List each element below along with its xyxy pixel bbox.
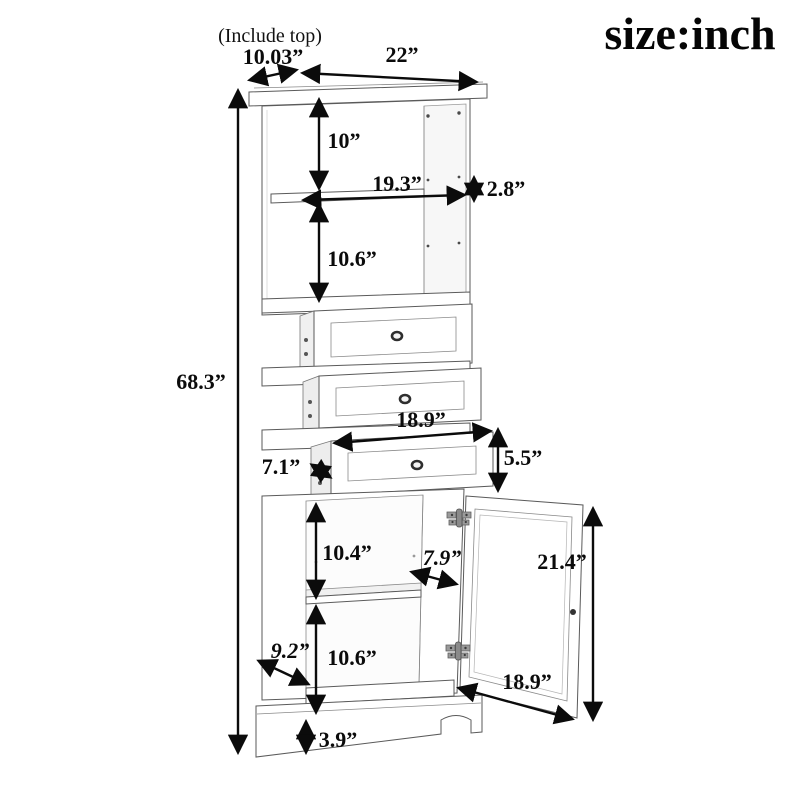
drawer1-side — [300, 311, 314, 375]
drawer1-side-hole — [304, 352, 308, 356]
cabinet-dimension-drawing: size:inch (Include top) 10.03” 22” 68.3”… — [0, 0, 800, 800]
dim-base-height-label: 3.9” — [319, 727, 358, 752]
drawer3-knob — [412, 461, 422, 469]
drawer2-side-hole — [308, 414, 312, 418]
dim-interior-width-label: 19.3” — [372, 171, 422, 196]
dim-overall-height-label: 68.3” — [176, 369, 226, 394]
dim-middle-shelf-label: 10.6” — [327, 246, 377, 271]
door-knob — [570, 609, 576, 615]
dim-top-shelf-label: 10” — [328, 128, 361, 153]
dim-door-width-label: 18.9” — [502, 669, 552, 694]
door-hinge-bottom — [446, 642, 470, 660]
drawer2-side — [303, 376, 319, 434]
drawer1-side-hole — [304, 338, 308, 342]
dim-shelf-depth-label: 7.9” — [423, 545, 462, 570]
dim-top-depth-label: 10.03” — [243, 44, 304, 69]
dim-drawer-depth-label: 7.1” — [262, 454, 301, 479]
cubby-right-panel — [424, 104, 466, 297]
dim-top-depth-arrow — [250, 70, 296, 80]
drawer3-side-hole — [318, 481, 322, 485]
dim-bottom-shelf-label: 10.6” — [327, 645, 377, 670]
dim-door-height-label: 21.4” — [537, 549, 587, 574]
door-hinge-top — [447, 509, 471, 527]
lower-pin-hole — [413, 555, 416, 558]
drawer2-side-hole — [308, 400, 312, 404]
dim-top-width-arrow — [303, 73, 476, 82]
dimension-diagram: size:inch (Include top) 10.03” 22” 68.3”… — [0, 0, 800, 800]
dim-lower-shelf-label: 10.4” — [322, 540, 372, 565]
dim-drawer-height-label: 5.5” — [504, 445, 543, 470]
dim-drawer-width-label: 18.9” — [396, 407, 446, 432]
size-unit-title: size:inch — [604, 8, 775, 59]
dim-right-gap-label: 2.8” — [487, 176, 526, 201]
dim-bottom-depth-label: 9.2” — [271, 638, 310, 663]
drawer1-knob — [392, 332, 402, 340]
dim-top-width-label: 22” — [386, 42, 419, 67]
drawer2-knob — [400, 395, 410, 403]
